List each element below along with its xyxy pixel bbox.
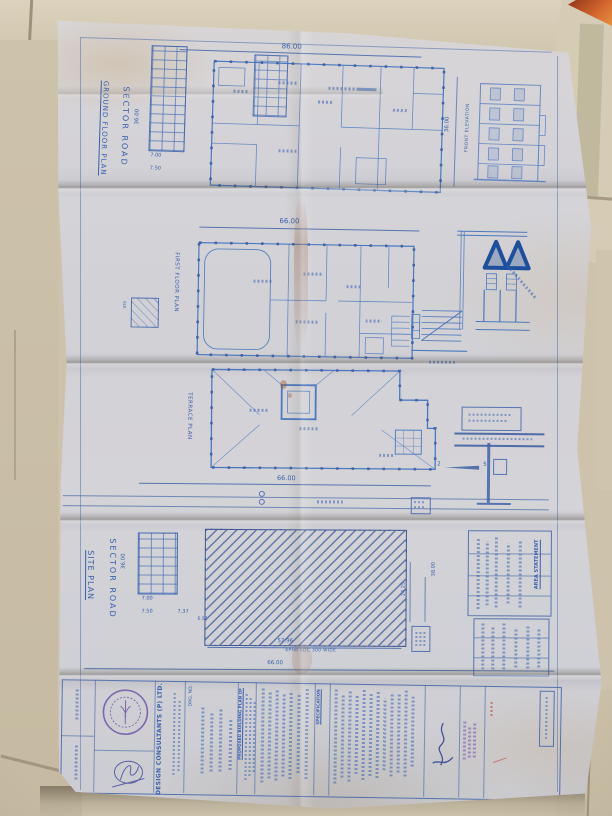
fold-stain-vertical: [294, 196, 308, 356]
dim-right: 36.00: [445, 116, 451, 132]
text-sim: [469, 414, 513, 416]
dim-left: 36.00: [135, 109, 141, 125]
front-elevation-linework: [473, 77, 548, 191]
dim-bracket: [409, 562, 410, 622]
first-floor-linework: [187, 234, 429, 366]
bay-dim: 7.00: [142, 596, 153, 601]
spec-title: SPECIFICATION: [316, 689, 321, 725]
site-plan-title: SITE PLAN: [86, 550, 95, 600]
dim-right-a: 38.00: [432, 562, 437, 576]
text-sim: [462, 438, 532, 441]
area-table-upper: AREA STATEMENT: [468, 530, 552, 616]
title-block-band: JA DESIGN CONSULTANTS (P) LTD. DRG. NO. …: [48, 675, 605, 816]
road-label-sim: [317, 500, 343, 503]
floor-tile-left: [0, 40, 58, 766]
ground-floor-plan-band: 86.00 SECTOR ROAD GROUND FLOOR PLAN 36.0…: [45, 34, 605, 205]
building-footprint-hatched: [204, 529, 407, 647]
lift-label: ELE: [122, 301, 126, 308]
fold-stain-bottom: [292, 644, 312, 674]
ground-floor-title: GROUND FLOOR PLAN: [99, 81, 109, 176]
road-label: SECTOR ROAD: [107, 538, 116, 618]
area-table-title: AREA STATEMENT: [535, 540, 541, 590]
first-floor-title: FIRST FLOOR PLAN: [172, 252, 179, 312]
table-text-sim: [486, 541, 489, 605]
roof-label-sim: [250, 409, 268, 412]
room-label-sim: [279, 81, 297, 85]
detail-ref: 2: [437, 462, 441, 468]
parking-grid: [148, 45, 187, 152]
dim-line: [139, 483, 431, 487]
rust-spot: [288, 393, 292, 398]
table-text-sim: [495, 537, 498, 607]
room-label-sim: [346, 285, 362, 288]
bay-dim: 7.50: [142, 609, 153, 614]
bay-dim: 7.37: [178, 610, 189, 615]
level-marker: [259, 499, 265, 505]
room-label-sim: [393, 109, 409, 113]
parapet-note-box: [461, 407, 521, 432]
table-text-sim: [507, 543, 510, 603]
parapet-bar: [454, 433, 544, 448]
road-edge-line: [63, 505, 549, 510]
detail-label-sim: [429, 361, 455, 364]
text-sim: [545, 697, 548, 739]
purple-stamp-sim: [468, 726, 471, 758]
dim-plot: 66.00: [267, 661, 283, 667]
clamp-detail: [493, 459, 507, 475]
detail-ref: 5: [483, 463, 487, 469]
table-text-sim: [519, 539, 522, 607]
parapet-stem: [487, 443, 491, 503]
tile-grout-line: [14, 330, 16, 480]
stair-detail-linework: [409, 298, 470, 369]
blueprint-sheet: 86.00 SECTOR ROAD GROUND FLOOR PLAN 36.0…: [50, 16, 605, 811]
roof-label-sim: [299, 427, 319, 430]
table-text-sim: [526, 624, 529, 668]
floor-tile-right: [596, 250, 612, 490]
lift-symbol: [131, 297, 160, 327]
table-text-sim: [537, 628, 540, 668]
text-sim: [469, 420, 507, 422]
level-marker: [259, 491, 265, 497]
bay-dim: 7.50: [150, 166, 161, 172]
room-label-sim: [358, 88, 376, 92]
table-text-sim: [477, 537, 480, 609]
room-label-sim: [278, 149, 298, 153]
tb-text-sim: [75, 689, 78, 719]
text-sim: [423, 630, 425, 646]
room-label-sim: [253, 280, 271, 283]
note-box: [411, 497, 431, 514]
note-box: [411, 626, 430, 652]
first-floor-plan-band: 66.00 FIRST FLOOR PLAN ELE: [47, 188, 605, 373]
road-label: SECTOR ROAD: [119, 86, 130, 167]
terrace-linework: [199, 366, 445, 476]
ground-floor-linework: [205, 57, 454, 199]
round-stamp: [101, 688, 150, 737]
site-plan-band: SECTOR ROAD SITE PLAN 36.00 7.00 7.50 7.…: [49, 520, 605, 678]
tb-text-sim: [74, 745, 77, 779]
table-text-sim: [481, 623, 484, 669]
text-sim: [414, 501, 426, 503]
dim-line-right: [453, 77, 457, 187]
table-text-sim: [514, 627, 517, 667]
parking-grid: [138, 532, 178, 594]
table-text-sim: [502, 623, 505, 669]
table-rule: [469, 595, 551, 596]
dim-line: [199, 227, 419, 232]
text-sim: [414, 506, 426, 508]
dim-right-b: 24.25: [402, 582, 407, 596]
roof-label-sim: [379, 454, 395, 457]
area-table-lower: [473, 618, 549, 676]
dim-top: 86.00: [282, 43, 302, 51]
dim-bracket: [424, 577, 425, 622]
ink-scribble: [427, 719, 460, 773]
front-elevation-title: FRONT ELEVATION: [465, 103, 471, 152]
room-label-sim: [366, 320, 382, 323]
dim-building: 57.96: [277, 639, 293, 645]
text-sim: [419, 630, 421, 646]
rust-spot: [280, 380, 287, 389]
parapet-foot: [477, 503, 511, 505]
table-text-sim: [491, 627, 494, 669]
room-label-sim: [233, 90, 249, 94]
photo-of-blueprint: 86.00 SECTOR ROAD GROUND FLOOR PLAN 36.0…: [0, 0, 612, 816]
road-edge-line: [63, 495, 549, 500]
dim-bottom: 66.00: [277, 475, 296, 482]
dim-left: 36.00: [122, 553, 128, 569]
dim-step: 6.57: [197, 618, 207, 623]
text-sim: [415, 630, 417, 646]
bay-dim: 7.00: [150, 153, 161, 159]
detail-arrow: [445, 465, 479, 469]
terrace-plan-band: TERRACE PLAN 66.00: [49, 363, 605, 525]
signature-scribble: [110, 756, 147, 791]
room-label-sim: [318, 100, 334, 104]
terrace-title: TERRACE PLAN: [185, 392, 191, 439]
red-stamp-sim: [490, 702, 492, 716]
drg-no-label: DRG. NO.: [190, 685, 195, 706]
sheet-number-box: [539, 691, 555, 747]
